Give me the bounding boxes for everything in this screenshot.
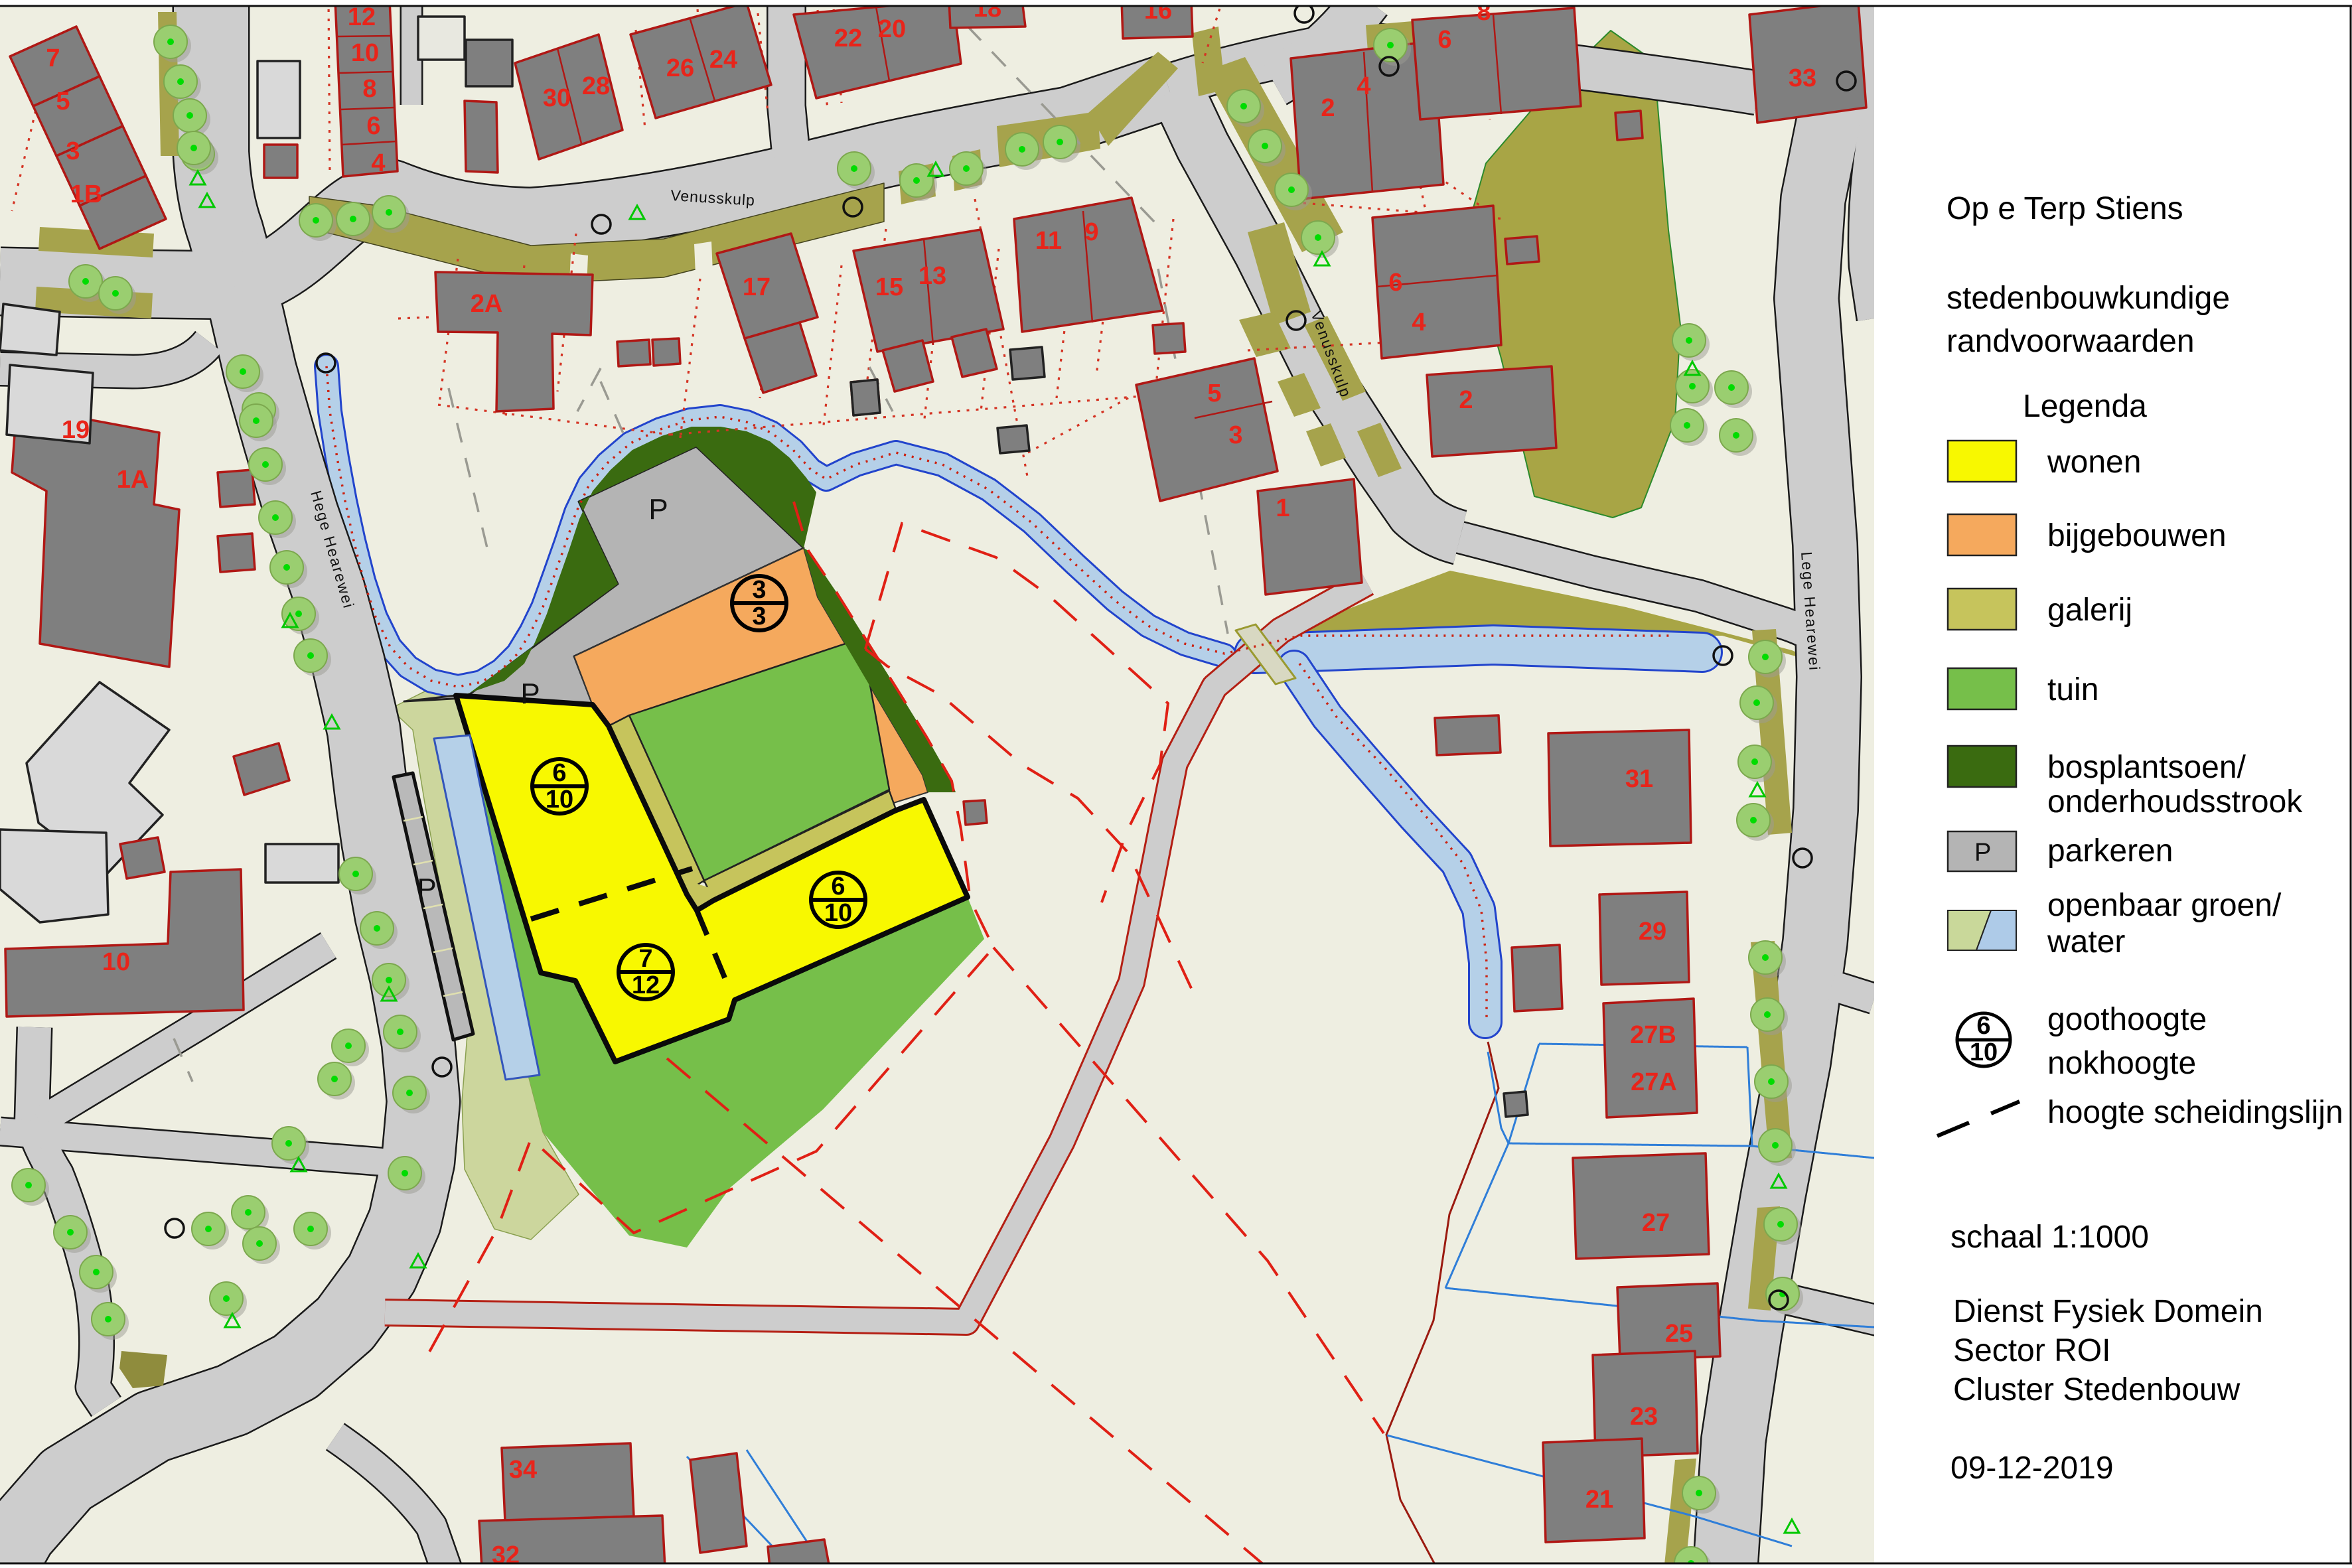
- svg-text:8: 8: [362, 75, 376, 103]
- svg-text:4: 4: [1357, 72, 1370, 100]
- svg-text:29: 29: [1639, 918, 1666, 946]
- svg-text:4: 4: [1412, 309, 1426, 336]
- svg-text:17: 17: [743, 273, 771, 301]
- svg-text:Legenda: Legenda: [2023, 389, 2147, 424]
- svg-text:water: water: [2047, 924, 2125, 960]
- svg-text:onderhoudsstrook: onderhoudsstrook: [2047, 784, 2303, 820]
- svg-text:6: 6: [366, 112, 380, 140]
- svg-text:16: 16: [1144, 0, 1172, 25]
- svg-text:tuin: tuin: [2047, 672, 2098, 707]
- svg-text:27: 27: [1642, 1209, 1670, 1237]
- svg-text:bosplantsoen/: bosplantsoen/: [2047, 750, 2246, 785]
- svg-text:parkeren: parkeren: [2047, 833, 2173, 869]
- svg-text:wonen: wonen: [2047, 445, 2141, 480]
- svg-text:33: 33: [1789, 64, 1816, 92]
- svg-text:28: 28: [582, 72, 610, 100]
- svg-text:18: 18: [974, 0, 1001, 23]
- svg-text:2A: 2A: [471, 290, 503, 318]
- svg-text:3: 3: [66, 137, 80, 165]
- svg-text:10: 10: [102, 948, 130, 976]
- svg-text:4: 4: [371, 149, 385, 177]
- svg-text:19: 19: [62, 416, 90, 444]
- svg-text:10: 10: [824, 899, 852, 927]
- svg-text:31: 31: [1625, 765, 1653, 793]
- svg-text:12: 12: [348, 3, 376, 31]
- svg-text:6: 6: [552, 759, 566, 787]
- svg-text:3: 3: [1228, 421, 1242, 449]
- svg-text:7: 7: [638, 945, 652, 973]
- svg-text:2: 2: [1459, 386, 1473, 414]
- svg-text:7: 7: [46, 44, 60, 72]
- svg-text:21: 21: [1585, 1486, 1613, 1514]
- svg-text:6: 6: [1388, 269, 1402, 297]
- svg-text:26: 26: [666, 54, 694, 82]
- svg-text:34: 34: [509, 1456, 537, 1484]
- svg-text:Sector ROI: Sector ROI: [1953, 1333, 2110, 1368]
- svg-text:12: 12: [632, 971, 660, 999]
- svg-text:Cluster Stedenbouw: Cluster Stedenbouw: [1953, 1372, 2241, 1407]
- svg-text:24: 24: [709, 46, 737, 74]
- svg-text:5: 5: [1207, 380, 1221, 407]
- svg-text:25: 25: [1665, 1320, 1693, 1348]
- svg-text:09-12-2019: 09-12-2019: [1950, 1451, 2114, 1486]
- svg-text:5: 5: [56, 88, 70, 115]
- svg-text:6: 6: [831, 873, 845, 900]
- svg-text:galerij: galerij: [2047, 593, 2132, 628]
- svg-text:22: 22: [834, 25, 862, 52]
- svg-text:3: 3: [752, 603, 766, 630]
- svg-text:9: 9: [1084, 218, 1098, 246]
- svg-text:hoogte scheidingslijn: hoogte scheidingslijn: [2047, 1095, 2343, 1130]
- svg-text:bijgebouwen: bijgebouwen: [2047, 518, 2227, 553]
- svg-text:randvoorwaarden: randvoorwaarden: [1947, 324, 2195, 359]
- svg-text:P: P: [1974, 839, 1991, 867]
- svg-text:P: P: [417, 873, 436, 905]
- svg-text:11: 11: [1035, 227, 1062, 255]
- svg-text:1A: 1A: [117, 466, 149, 494]
- svg-text:schaal 1:1000: schaal 1:1000: [1950, 1220, 2149, 1255]
- svg-text:10: 10: [1970, 1038, 1998, 1066]
- svg-text:23: 23: [1630, 1403, 1658, 1431]
- svg-text:10: 10: [546, 786, 573, 814]
- svg-text:10: 10: [351, 39, 379, 67]
- svg-text:8: 8: [1477, 0, 1491, 26]
- svg-text:stedenbouwkundige: stedenbouwkundige: [1947, 281, 2230, 316]
- svg-text:20: 20: [878, 15, 906, 43]
- svg-text:P: P: [520, 677, 540, 710]
- svg-text:Dienst Fysiek Domein: Dienst Fysiek Domein: [1953, 1294, 2263, 1329]
- svg-text:openbaar groen/: openbaar groen/: [2047, 888, 2282, 923]
- svg-text:27B: 27B: [1630, 1021, 1676, 1049]
- svg-text:30: 30: [543, 84, 571, 112]
- svg-text:Op e Terp Stiens: Op e Terp Stiens: [1947, 191, 2183, 226]
- svg-text:1: 1: [1276, 494, 1289, 522]
- svg-text:2: 2: [1321, 94, 1335, 122]
- svg-text:27A: 27A: [1631, 1068, 1677, 1096]
- svg-text:nokhoogte: nokhoogte: [2047, 1046, 2196, 1081]
- svg-text:goothoogte: goothoogte: [2047, 1002, 2207, 1037]
- svg-text:15: 15: [875, 273, 903, 301]
- svg-text:6: 6: [1976, 1012, 1990, 1040]
- svg-text:13: 13: [919, 262, 946, 290]
- svg-text:P: P: [648, 493, 668, 526]
- svg-text:6: 6: [1437, 26, 1451, 54]
- svg-text:3: 3: [752, 576, 766, 604]
- svg-text:1B: 1B: [70, 180, 103, 208]
